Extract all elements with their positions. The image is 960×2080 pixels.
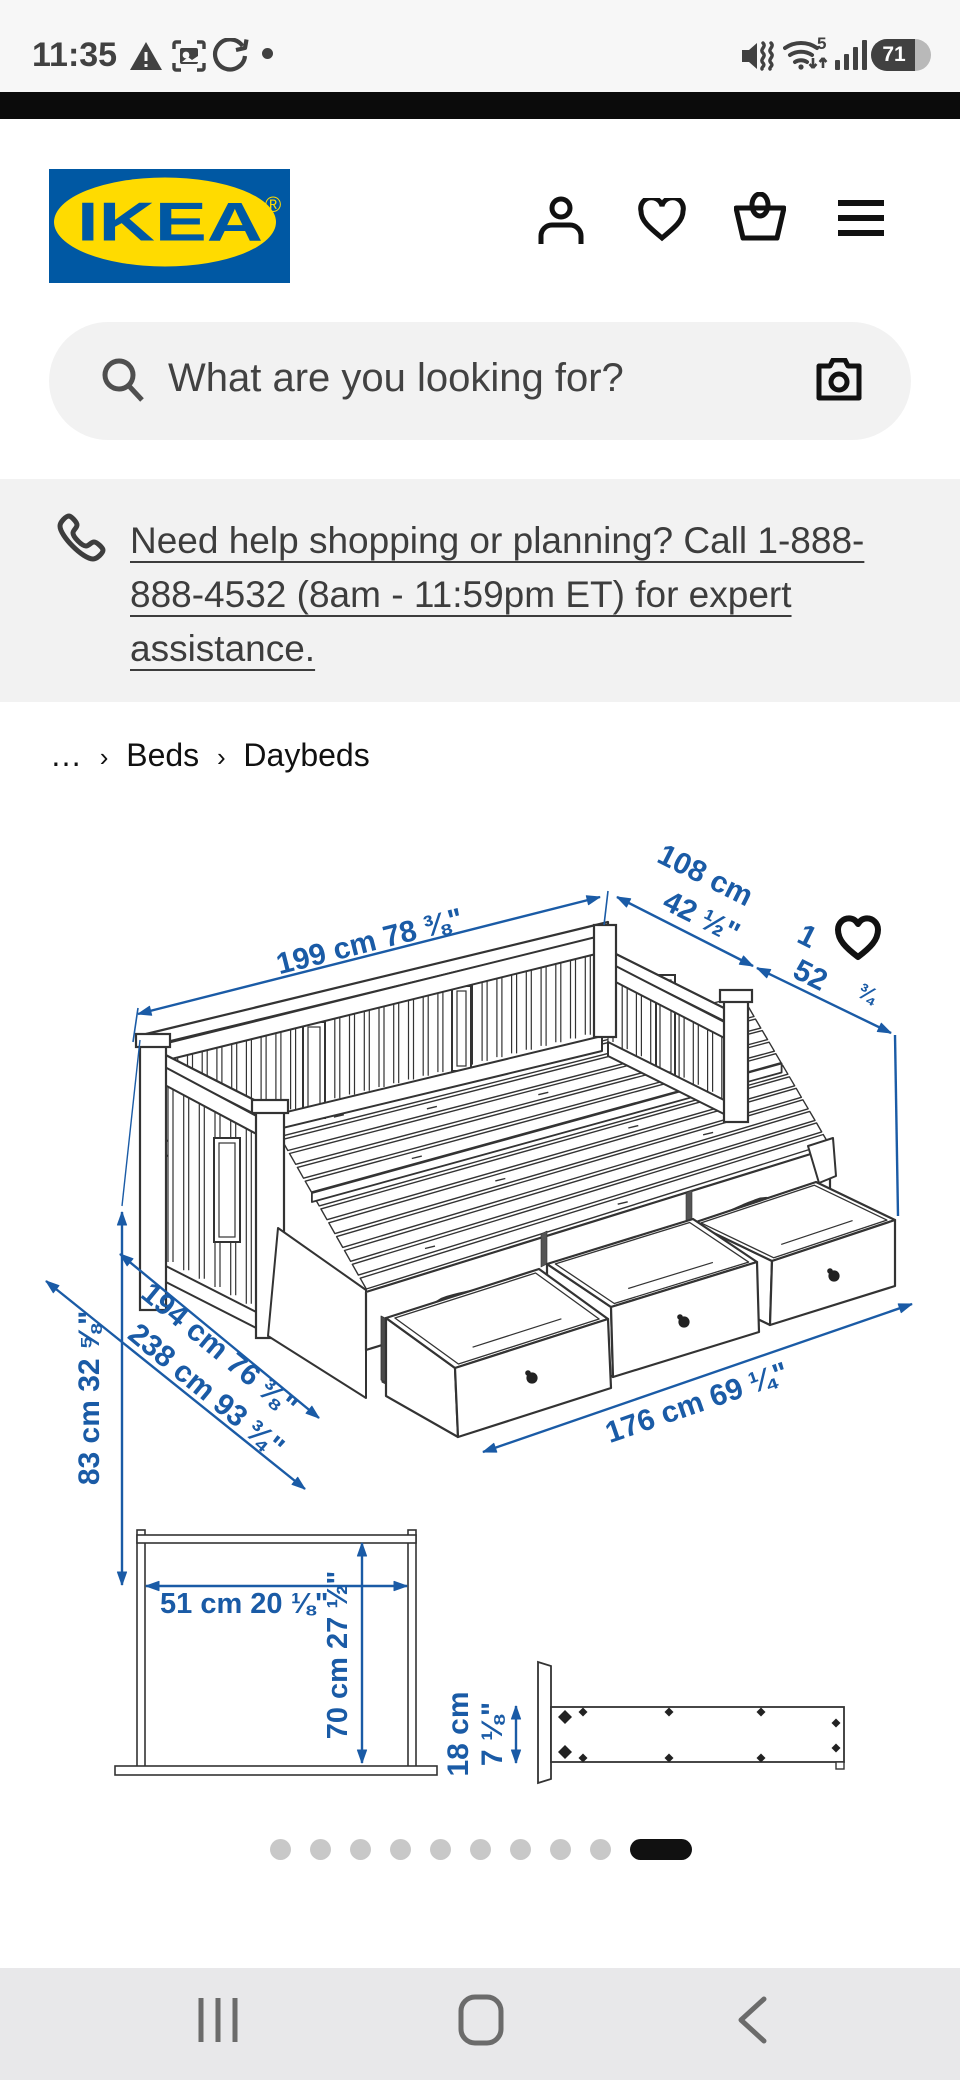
svg-text:18 cm: 18 cm [442,1691,475,1776]
svg-text:83 cm 32 ⅝": 83 cm 32 ⅝" [73,1311,106,1485]
svg-text:7 ⅛": 7 ⅛" [476,1702,509,1766]
svg-text:1: 1 [792,918,822,955]
svg-text:¾: ¾ [854,978,883,1009]
svg-text:5: 5 [817,36,826,53]
svg-text:®: ® [265,192,281,217]
svg-text:51 cm 20 ⅛": 51 cm 20 ⅛" [160,1588,329,1620]
svg-text:52: 52 [788,953,833,997]
svg-text:IKEA: IKEA [77,191,263,253]
svg-text:70 cm 27 ½": 70 cm 27 ½" [322,1571,354,1740]
